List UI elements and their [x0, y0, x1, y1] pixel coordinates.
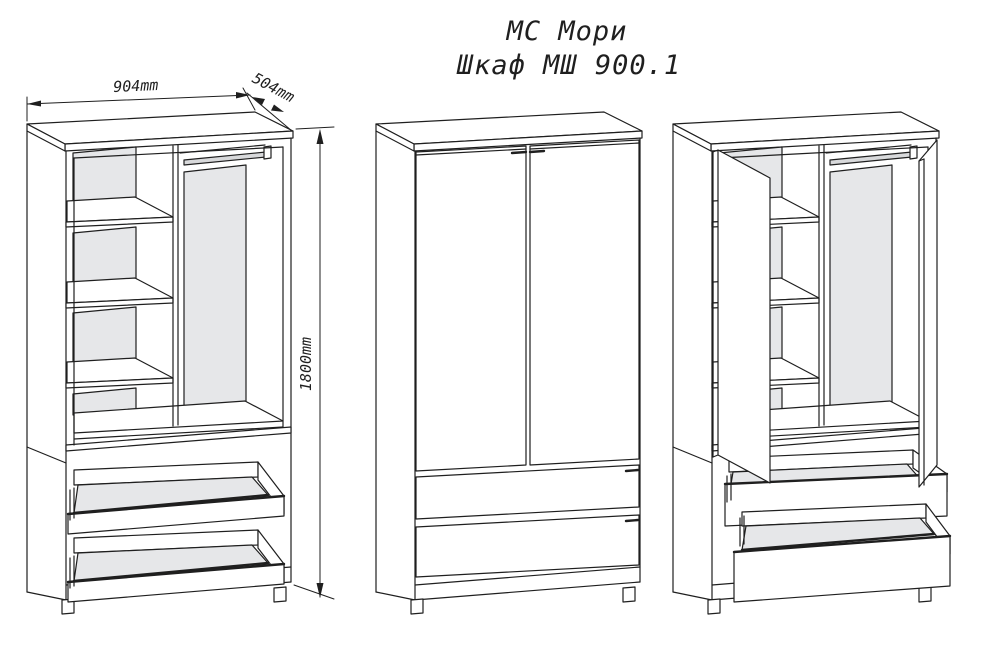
wardrobe-closed-view: [376, 112, 642, 614]
top-board: [673, 112, 939, 151]
left-door-open: [713, 150, 770, 483]
shelf: [66, 358, 173, 388]
drawer-front: [416, 515, 639, 577]
title-line-2: Шкаф МШ 900.1: [456, 50, 681, 81]
dimension-height: 1800mm: [294, 127, 334, 599]
foot: [708, 599, 720, 614]
wardrobe-open-view: 904mm 504mm 1800mm: [27, 69, 334, 614]
height-dimension-label: 1800mm: [297, 337, 315, 391]
divider: [173, 145, 178, 426]
drawer-open: [734, 504, 950, 602]
shelf: [66, 197, 173, 227]
drawer-open: [68, 530, 284, 602]
foot: [274, 587, 286, 602]
foot: [919, 587, 931, 602]
wardrobe-doors-open-view: [673, 112, 950, 614]
left-door: [416, 146, 526, 471]
foot: [623, 587, 635, 602]
furniture-drawing-page: МС Мори Шкаф МШ 900.1: [0, 0, 1000, 645]
shelf: [66, 278, 173, 308]
right-door: [530, 140, 639, 465]
drawing-title: МС Мори Шкаф МШ 900.1: [456, 16, 681, 81]
width-dimension-label: 904mm: [113, 76, 159, 96]
divider: [819, 145, 824, 426]
top-board: [27, 112, 293, 151]
drawer-front: [416, 465, 639, 519]
foot: [411, 599, 423, 614]
right-door-open: [919, 140, 937, 487]
drawer-open: [68, 462, 284, 534]
wardrobe-diagram: МС Мори Шкаф МШ 900.1: [0, 0, 1000, 645]
title-line-1: МС Мори: [506, 16, 628, 47]
